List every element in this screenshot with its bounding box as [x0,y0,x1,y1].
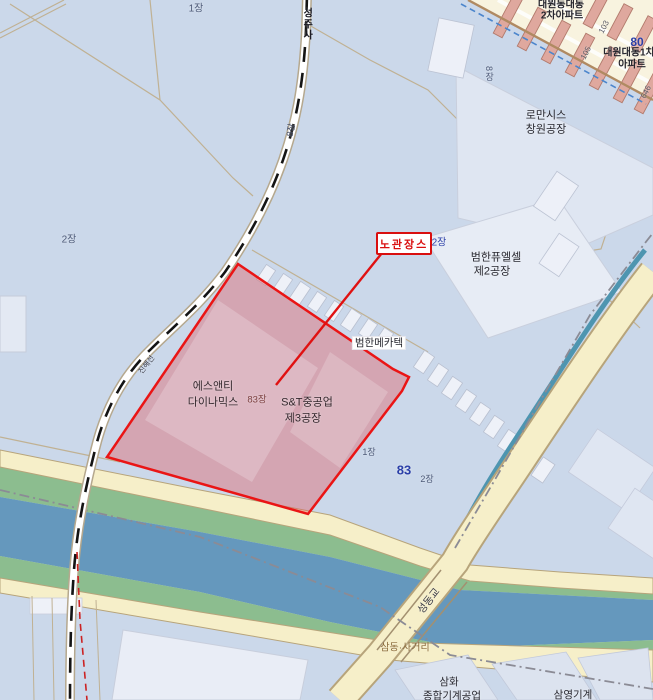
map-canvas[interactable]: 1장2장8장성주사진해선대원동대동2차아파트대원대동1차아파트801031056… [0,0,653,700]
map-graphics [0,0,653,700]
annotation-box[interactable]: 노관장스 [376,232,432,255]
